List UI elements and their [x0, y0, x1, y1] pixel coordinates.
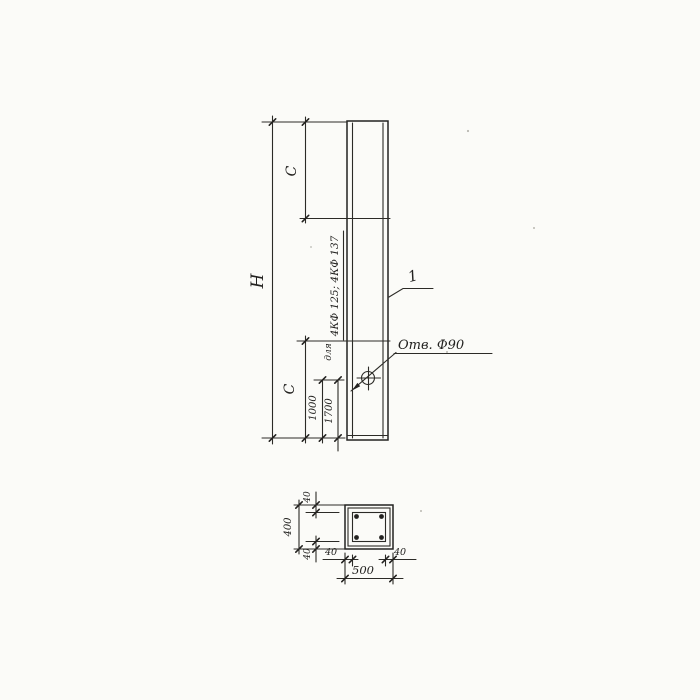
hole-callout-leader	[351, 353, 492, 392]
column-technical-drawing: H C C 1000 1700 для 4КФ 125; 4КФ 137 Отв…	[0, 0, 700, 700]
note-column-marks: 4КФ 125; 4КФ 137	[329, 235, 341, 337]
elevation-view: H C C 1000 1700 для 4КФ 125; 4КФ 137 Отв…	[248, 116, 492, 451]
dim-label-1700: 1700	[324, 398, 335, 424]
rebar-dot-bottom-left	[354, 535, 359, 540]
column-outer-edge	[347, 121, 388, 440]
dim-label-40-left: 40	[324, 547, 337, 558]
dim-label-lower-zone: C	[282, 383, 298, 394]
rebar-dot-top-right	[379, 514, 384, 519]
section-outline	[345, 505, 393, 549]
dim-label-500: 500	[352, 563, 374, 577]
hole-symbol	[357, 367, 381, 390]
section-inner-edge	[348, 508, 390, 546]
part-callout	[389, 289, 433, 298]
hole-callout-label: Отв. Ф90	[398, 338, 464, 353]
part-callout-leader	[389, 289, 433, 298]
dim-label-40-bottom: 40	[303, 548, 313, 561]
dim-label-400: 400	[283, 517, 294, 538]
rebar-dot-top-left	[354, 514, 359, 519]
dim-label-height: H	[248, 272, 268, 289]
dim-label-1000: 1000	[308, 395, 319, 421]
dim-label-40-right: 40	[393, 547, 406, 558]
dim-label-40-top: 40	[303, 491, 313, 504]
dim-label-upper-zone: C	[284, 165, 300, 176]
drawing-sheet: H C C 1000 1700 для 4КФ 125; 4КФ 137 Отв…	[0, 0, 700, 700]
note-for-prefix: для	[324, 343, 334, 360]
part-number-label: 1	[406, 266, 420, 286]
rebar-dot-bottom-right	[379, 535, 384, 540]
section-extension-lines	[294, 505, 393, 584]
section-view: 400 40 40 40 40 500	[283, 491, 416, 584]
